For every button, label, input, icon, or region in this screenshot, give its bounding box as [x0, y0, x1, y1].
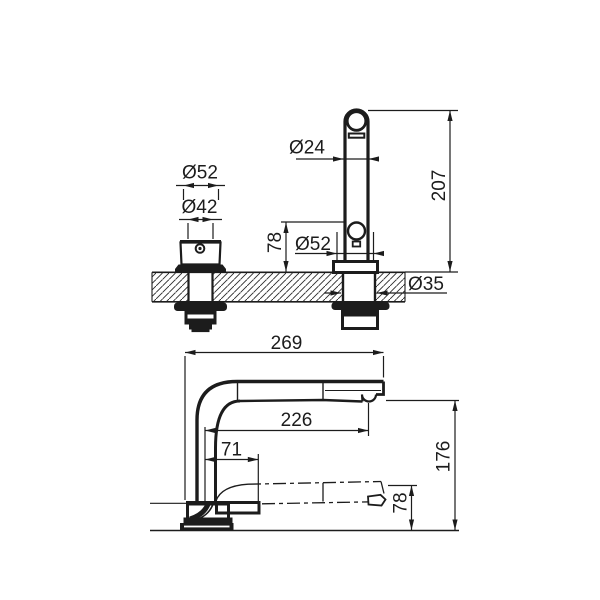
dim-lowered-outlet-height: 78 [391, 492, 412, 513]
dim-dock-offset: 71 [221, 440, 242, 461]
spout-ball-seat [349, 134, 365, 138]
countertop-section [152, 272, 405, 302]
dim-outlet-reach: 226 [281, 410, 313, 431]
dim-joint-height: 78 [265, 232, 286, 253]
spout-under-box [343, 315, 378, 329]
dim-spout-base-diameter: Ø52 [295, 234, 331, 255]
handle-flange [175, 265, 226, 273]
spout-base-flange [334, 262, 378, 273]
spout-joint-key [353, 242, 361, 247]
lowered-aerator-dome [368, 495, 386, 506]
spout-mounting-nut [332, 302, 390, 310]
dim-handle-body-diameter: Ø42 [182, 197, 218, 218]
handle-thread-tail-tip [192, 330, 210, 333]
base-plate-groove [184, 526, 230, 528]
left-shank-cutout [190, 273, 212, 302]
handle-under-body-groove [188, 315, 214, 319]
handle-thread-tail [189, 325, 212, 330]
dim-spout-height: 207 [429, 170, 450, 202]
handle-mounting-nut [174, 303, 227, 312]
handle-screw-dot [198, 247, 201, 250]
dim-spout-tube-diameter: Ø24 [289, 138, 325, 159]
dim-shank-diameter: Ø35 [408, 274, 444, 295]
base-lower-band [184, 518, 233, 524]
arm-underside [240, 400, 363, 402]
right-shank-cutout [344, 273, 374, 302]
dim-overall-depth: 269 [271, 333, 303, 354]
spout-top-ball [347, 112, 366, 131]
faucet-dimension-drawing: Ø52 Ø42 Ø24 207 78 [0, 0, 600, 600]
dim-overall-height: 176 [434, 441, 455, 473]
dim-handle-cap-diameter: Ø52 [182, 163, 218, 184]
spout-joint-ball [348, 223, 365, 240]
drawing-canvas: Ø52 Ø42 Ø24 207 78 [0, 0, 600, 600]
